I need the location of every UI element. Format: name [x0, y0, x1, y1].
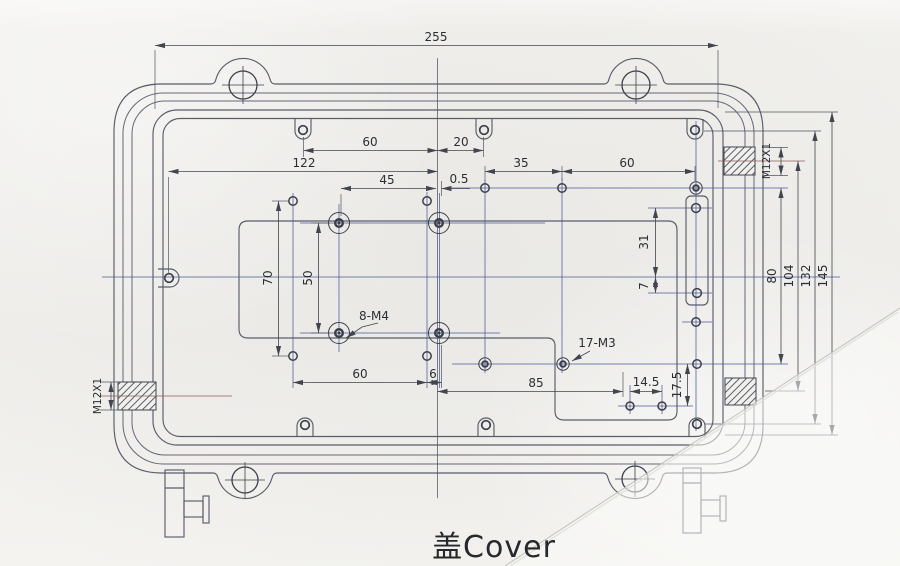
dim-132: 132 — [799, 265, 813, 288]
dim-31: 31 — [637, 234, 651, 249]
threaded-bosses — [118, 147, 756, 410]
dim-60-right: 60 — [619, 156, 634, 170]
scanned-engineering-drawing: 255 60 20 122 35 60 45 0.5 70 50 8-M4 31… — [0, 0, 900, 566]
cover-drawing-canvas: 255 60 20 122 35 60 45 0.5 70 50 8-M4 31… — [0, 0, 900, 566]
dim-17-5: 17.5 — [670, 372, 684, 399]
tab-hole — [480, 126, 489, 135]
dim-70: 70 — [261, 270, 275, 285]
callout-8-M4: 8-M4 — [359, 309, 389, 323]
top-tab-1 — [295, 119, 311, 139]
bump-hole-bottom-left — [225, 462, 265, 498]
dim-122: 122 — [293, 156, 316, 170]
tab-hole — [693, 420, 702, 429]
cover-body-outline — [114, 58, 763, 498]
tab-hole — [301, 421, 310, 430]
bump-hole-top-right — [615, 66, 657, 104]
right-lower-thread-hatch — [725, 378, 756, 405]
tab-hole — [299, 126, 308, 135]
dim-60-top: 60 — [362, 135, 377, 149]
dim-6: 6 — [429, 367, 437, 381]
dim-14-5: 14.5 — [633, 375, 660, 389]
left-leg-screw-head — [203, 496, 209, 523]
outer-edge-with-bumps — [114, 58, 763, 498]
thread-callout-right: M12X1 — [761, 143, 773, 179]
leader-8m4 — [346, 323, 378, 338]
tab-hole — [691, 126, 700, 135]
dim-80: 80 — [765, 268, 779, 283]
drawing-title: 盖Cover — [432, 530, 556, 565]
tab-hole — [482, 421, 491, 430]
dim-85: 85 — [528, 376, 543, 390]
plateau-outline — [239, 221, 677, 420]
dimension-labels: 255 60 20 122 35 60 45 0.5 70 50 8-M4 31… — [92, 30, 830, 414]
dim-104: 104 — [782, 265, 796, 288]
dimension-extension-lines — [100, 50, 838, 435]
dim-145: 145 — [816, 265, 830, 288]
dim-7: 7 — [637, 282, 651, 290]
dimension-lines — [111, 46, 832, 436]
dim-60-bottom: 60 — [352, 367, 367, 381]
dim-20: 20 — [453, 135, 468, 149]
dim-45: 45 — [379, 173, 394, 187]
hole-pattern-8-M4 — [329, 213, 450, 344]
third-wall-line — [132, 101, 745, 455]
dim-35: 35 — [513, 156, 528, 170]
side-tab-hole — [165, 274, 174, 283]
leader-17m3 — [572, 351, 590, 361]
dim-255: 255 — [425, 30, 448, 44]
left-leg-screw-shaft — [184, 501, 203, 517]
thread-callout-left: M12X1 — [92, 378, 104, 414]
dim-50: 50 — [301, 270, 315, 285]
top-tab-2 — [476, 119, 492, 139]
left-leg — [165, 470, 209, 537]
dim-0-5: 0.5 — [449, 172, 468, 186]
callout-17-M3: 17-M3 — [578, 336, 616, 350]
bump-hole-top-left — [222, 66, 264, 104]
top-tab-3 — [687, 119, 703, 139]
